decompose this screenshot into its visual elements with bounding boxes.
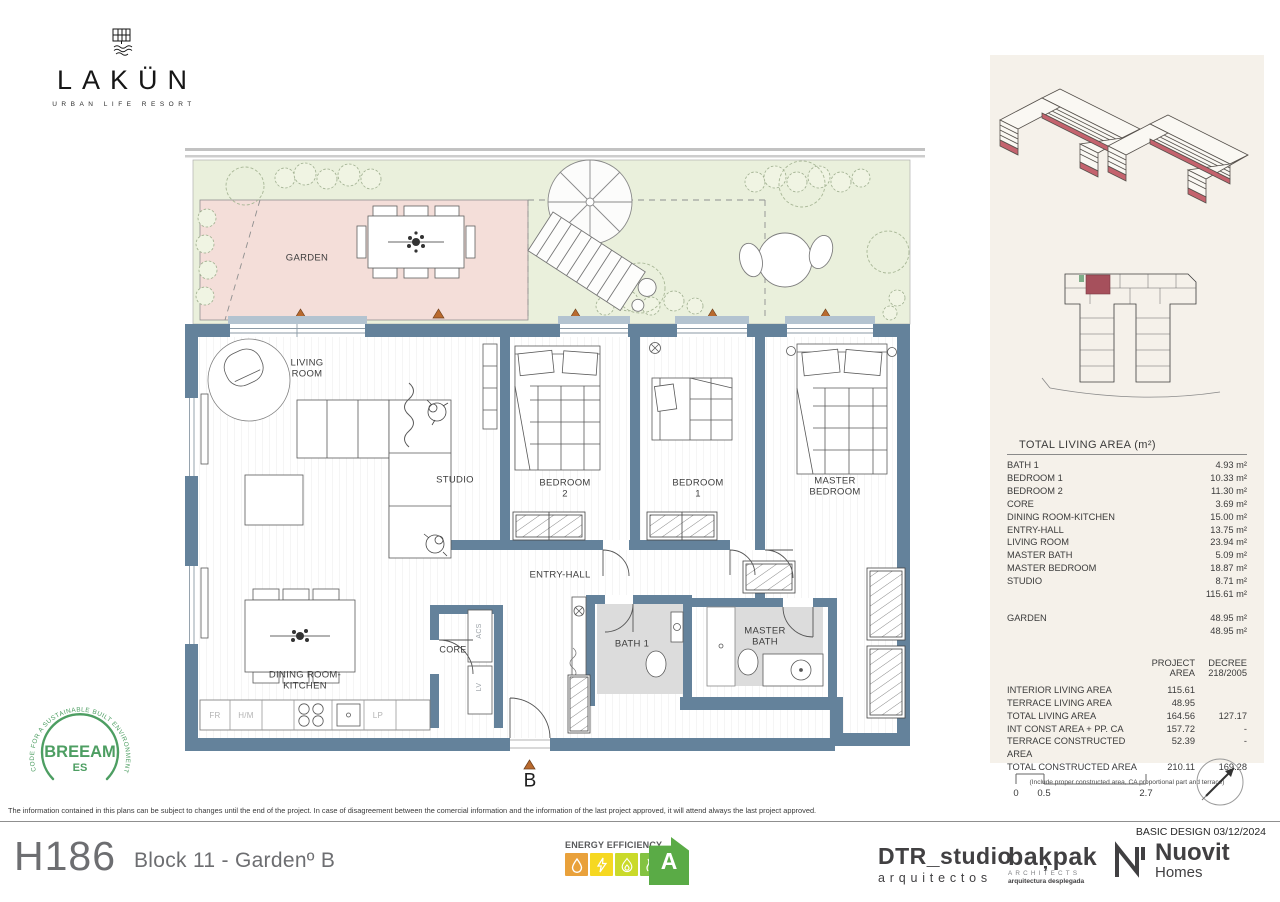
label-hm: H/M	[238, 711, 254, 721]
table-row: CORE3.69 m²	[1007, 498, 1247, 511]
room-label-bedroom-2: BEDROOM 2	[537, 478, 593, 501]
table-header: PROJECT AREA DECREE 218/2005	[1007, 658, 1247, 679]
room-label-master-bedroom: MASTER BEDROOM	[803, 476, 867, 499]
scale-27: 2.7	[1139, 788, 1152, 799]
table-row: INTERIOR LIVING AREA115.61	[1007, 684, 1247, 697]
energy-efficiency-badge: ENERGY EFFICIENCY A	[565, 837, 689, 889]
table-row: BEDROOM 110.33 m²	[1007, 472, 1247, 485]
scale-bar	[1012, 770, 1162, 790]
table-row: STUDIO8.71 m²	[1007, 575, 1247, 588]
breeam-title: BREEAM	[44, 743, 116, 761]
label-lp: LP	[373, 711, 383, 721]
room-label-studio: STUDIO	[436, 474, 474, 485]
breeam-badge: CODE FOR A SUSTAINABLE BUILT ENVIRONMENT…	[16, 692, 144, 810]
room-label-garden: GARDEN	[286, 252, 328, 263]
north-arrow	[1190, 752, 1250, 808]
garden-dining-table	[357, 206, 475, 278]
disclaimer-text: The information contained in this plans …	[8, 806, 1158, 815]
entry-marker-triangle	[524, 760, 535, 769]
room-label-bath-1: BATH 1	[615, 638, 649, 649]
unit-name: Block 11 - Gardenº B	[134, 849, 335, 873]
divider	[0, 821, 1280, 822]
flame-icon	[615, 853, 638, 876]
table-row: LIVING ROOM23.94 m²	[1007, 536, 1247, 549]
lakun-icon	[107, 26, 137, 56]
table-row: MASTER BATH5.09 m²	[1007, 549, 1247, 562]
table-row: DINING ROOM-KITCHEN15.00 m²	[1007, 511, 1247, 524]
label-acs: ACS	[476, 623, 484, 638]
brand-logo: LAKÜN URBAN LIFE RESORT	[38, 26, 206, 108]
table-row: TOTAL LIVING AREA164.56127.17	[1007, 710, 1247, 723]
nuovit-n-icon	[1112, 841, 1148, 881]
entry-marker-label: B	[524, 771, 537, 794]
table-row-subtotal: 48.95 m²	[1007, 625, 1247, 638]
room-label-living-room: LIVING ROOM	[283, 358, 331, 381]
bakpak-logo: baķpak ARCHITECTS arquitectura desplegad…	[1008, 845, 1097, 885]
highlighted-unit	[1086, 275, 1110, 294]
nuovit-logo: Nuovit Homes	[1112, 841, 1230, 881]
axonometric-view	[990, 61, 1264, 251]
brand-subtitle: URBAN LIFE RESORT	[38, 101, 206, 108]
label-fridge: FR	[209, 711, 220, 721]
col-decree: DECREE 218/2005	[1195, 658, 1247, 679]
water-drop-icon	[565, 853, 588, 876]
basic-design-date: BASIC DESIGN 03/12/2024	[1136, 826, 1266, 838]
room-label-bedroom-1: BEDROOM 1	[670, 478, 726, 501]
room-label-core: CORE	[439, 645, 466, 656]
floor-plan: GARDEN LIVING ROOM STUDIO BEDROOM 2 BEDR…	[185, 148, 925, 808]
block-key-plan	[990, 256, 1264, 424]
brand-name: LAKÜN	[38, 65, 206, 96]
table-row: ENTRY-HALL13.75 m²	[1007, 524, 1247, 537]
living-area-table-title: TOTAL LIVING AREA (m²)	[1007, 439, 1247, 455]
table-row: MASTER BEDROOM18.87 m²	[1007, 562, 1247, 575]
table-row: INT CONST AREA + PP. CA157.72-	[1007, 723, 1247, 736]
unit-code: H186	[14, 833, 116, 880]
scale-0: 0	[1013, 788, 1018, 799]
table-row-subtotal: 115.61 m²	[1007, 588, 1247, 601]
room-label-dining: DINING ROOM-KITCHEN	[261, 670, 349, 693]
living-area-table: TOTAL LIVING AREA (m²) BATH 14.93 m² BED…	[1007, 439, 1247, 638]
room-label-entry-hall: ENTRY-HALL	[529, 569, 590, 580]
scale-05: 0.5	[1037, 788, 1050, 799]
room-label-master-bath: MASTER BATH	[738, 626, 792, 649]
dtr-studio-logo: DTR_studio arquitectos	[878, 843, 1012, 885]
garden-drawing	[193, 160, 910, 324]
table-row: GARDEN48.95 m²	[1007, 612, 1247, 625]
lightning-icon	[590, 853, 613, 876]
col-project-area: PROJECT AREA	[1143, 658, 1195, 679]
table-row: BEDROOM 211.30 m²	[1007, 485, 1247, 498]
table-row: TERRACE LIVING AREA48.95	[1007, 697, 1247, 710]
table-row: BATH 14.93 m²	[1007, 459, 1247, 472]
label-lv: LV	[476, 683, 484, 692]
info-panel: TOTAL LIVING AREA (m²) BATH 14.93 m² BED…	[990, 55, 1264, 763]
floor-plan-sheet: LAKÜN URBAN LIFE RESORT	[0, 0, 1280, 902]
breeam-region: ES	[73, 762, 88, 774]
